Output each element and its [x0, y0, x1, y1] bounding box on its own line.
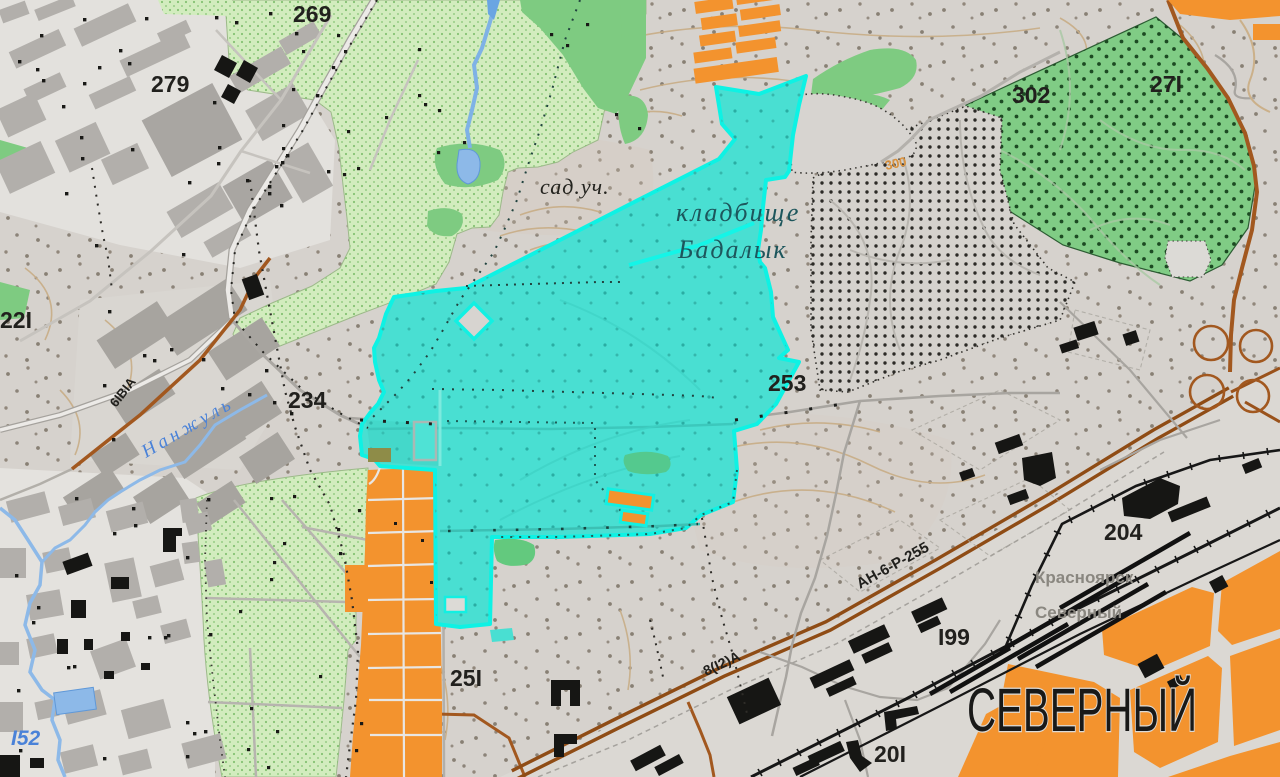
svg-text:27I: 27I — [1150, 71, 1182, 97]
svg-text:I99: I99 — [938, 624, 970, 650]
svg-text:269: 269 — [293, 1, 331, 27]
svg-text:253: 253 — [768, 370, 806, 396]
svg-text:I52: I52 — [11, 727, 41, 750]
svg-text:кладбище: кладбище — [676, 198, 800, 227]
svg-text:279: 279 — [151, 71, 189, 97]
svg-text:Красноярск: Красноярск — [1035, 568, 1134, 587]
svg-text:204: 204 — [1104, 519, 1143, 545]
svg-text:Северный: Северный — [1035, 603, 1122, 622]
svg-text:СЕВЕРНЫЙ: СЕВЕРНЫЙ — [967, 675, 1197, 744]
svg-text:22I: 22I — [0, 307, 32, 333]
svg-text:25I: 25I — [450, 665, 482, 691]
svg-text:сад.уч.: сад.уч. — [540, 174, 610, 199]
svg-text:Бадалык: Бадалык — [677, 235, 788, 264]
svg-text:302: 302 — [1012, 82, 1050, 108]
svg-text:234: 234 — [288, 387, 327, 413]
svg-text:20I: 20I — [874, 741, 906, 767]
